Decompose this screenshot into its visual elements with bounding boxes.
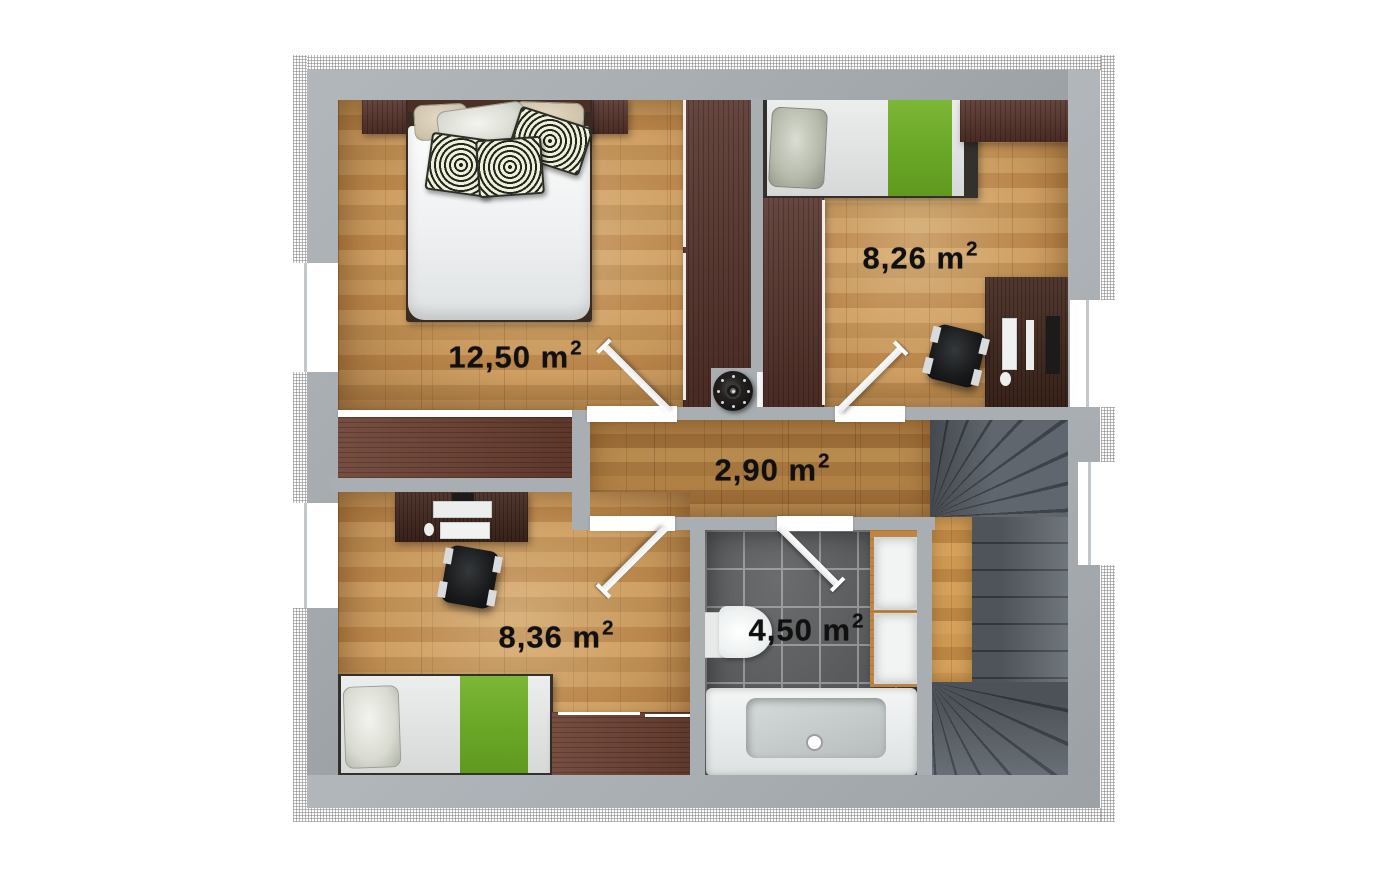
area-value-hallway: 2,90 m <box>715 453 818 488</box>
area-label-bedroom-top-right: 8,26 m2 <box>863 239 978 276</box>
window-left-2-glass <box>304 503 307 608</box>
staircase-upper-winder <box>930 418 1068 517</box>
hatch-gap-window-right-1 <box>1099 300 1117 407</box>
wall-lower-room-top <box>330 478 573 492</box>
window-right-2-glass <box>1088 462 1091 565</box>
sink-2 <box>874 613 918 684</box>
wall-hall-north-east <box>905 407 1100 420</box>
nightstand-right <box>588 98 628 134</box>
wardrobe-tr-door-gap <box>822 200 825 405</box>
desk-bottom-left <box>395 492 528 542</box>
single-bed-tr-pillow <box>768 107 828 190</box>
window-left-1 <box>305 263 338 372</box>
wall-hall-south-east <box>853 517 935 530</box>
wall-bathroom-west <box>690 530 705 775</box>
outer-wall-bottom <box>307 775 1100 808</box>
bed-pillow-striped-3 <box>475 136 545 198</box>
staircase-straight-flight <box>972 517 1068 682</box>
keyboard-bl <box>440 522 490 539</box>
area-value-bathroom: 4,50 m <box>749 613 852 648</box>
area-sup-hallway: 2 <box>818 449 830 472</box>
single-bed-bottom-left <box>338 674 553 775</box>
window-left-2 <box>305 503 338 608</box>
bathtub <box>706 688 917 776</box>
office-chair-bottom-left <box>439 544 500 610</box>
bathtub-drain <box>806 734 823 751</box>
window-right-1-glass <box>1086 300 1089 407</box>
hatch-band-top <box>293 55 1115 70</box>
area-sup-bedroom-top-right: 2 <box>966 237 978 260</box>
wall-hall-south <box>572 517 590 530</box>
master-sideboard <box>338 417 572 478</box>
wardrobe-top-right <box>763 198 824 407</box>
area-value-bedroom-top-right: 8,26 m <box>863 241 966 276</box>
single-bed-bl-green-blanket <box>460 676 528 773</box>
area-value-bedroom-bottom-left: 8,36 m <box>499 620 602 655</box>
mouse-bl <box>424 523 434 536</box>
area-label-bedroom-bottom-left: 8,36 m2 <box>499 618 614 655</box>
area-sup-master-bedroom: 2 <box>570 336 582 359</box>
sink-counter <box>870 530 920 687</box>
master-partition-line <box>338 410 572 417</box>
hatch-band-bottom <box>293 808 1115 822</box>
wall-bedrooms-divider <box>751 98 763 372</box>
stair-landing-floor <box>930 517 972 682</box>
hatch-band-right <box>1101 55 1115 822</box>
desk-top-right <box>985 277 1068 410</box>
monitor-bl-stand <box>433 501 492 518</box>
outer-wall-left <box>307 70 338 808</box>
outer-wall-top <box>307 70 1100 100</box>
area-value-master-bedroom: 12,50 m <box>448 340 569 375</box>
master-wardrobe <box>683 98 751 410</box>
double-bed <box>406 96 592 322</box>
hatch-band-left <box>293 55 307 822</box>
mouse-tr <box>1000 372 1011 386</box>
wall-hall-south-mid <box>675 517 777 530</box>
area-label-master-bedroom: 12,50 m2 <box>448 338 581 375</box>
outer-wall-right <box>1068 70 1100 775</box>
staircase-lower-winder <box>930 682 1068 775</box>
chimney-bolts <box>732 390 735 393</box>
dresser-top-line-1 <box>558 712 640 715</box>
area-label-bathroom: 4,50 m2 <box>749 611 864 648</box>
keyboard-tr <box>1002 318 1017 370</box>
master-wardrobe-door-gap-1 <box>683 100 686 247</box>
wall-bathroom-east <box>917 530 932 775</box>
monitor-tr-stand <box>1026 320 1034 370</box>
single-bed-top-right <box>763 98 978 198</box>
area-sup-bedroom-bottom-left: 2 <box>602 616 614 639</box>
master-wardrobe-door-gap-2 <box>683 253 686 400</box>
single-bed-tr-green-blanket <box>888 100 952 196</box>
sink-1 <box>874 537 918 610</box>
area-label-hallway: 2,90 m2 <box>715 451 830 488</box>
dresser-bottom-left <box>552 712 700 775</box>
office-chair-top-right <box>924 323 988 390</box>
hatch-gap-window-right-2 <box>1099 462 1117 565</box>
monitor-tr-screen <box>1046 316 1060 374</box>
window-left-1-glass <box>304 263 307 372</box>
chimney-flue <box>713 371 753 411</box>
wall-hall-west <box>572 410 590 530</box>
area-sup-bathroom: 2 <box>852 609 864 632</box>
nightstand-left <box>362 98 410 134</box>
window-right-1 <box>1070 300 1100 407</box>
dresser-top-line-2 <box>645 714 695 717</box>
single-bed-bl-pillow <box>343 685 402 769</box>
bathroom-door-opening <box>777 516 853 531</box>
floor-plan: 12,50 m2 8,26 m2 2,90 m2 8,36 m2 4,50 m2 <box>0 0 1400 875</box>
headboard-shelf-top-right <box>960 98 1068 142</box>
